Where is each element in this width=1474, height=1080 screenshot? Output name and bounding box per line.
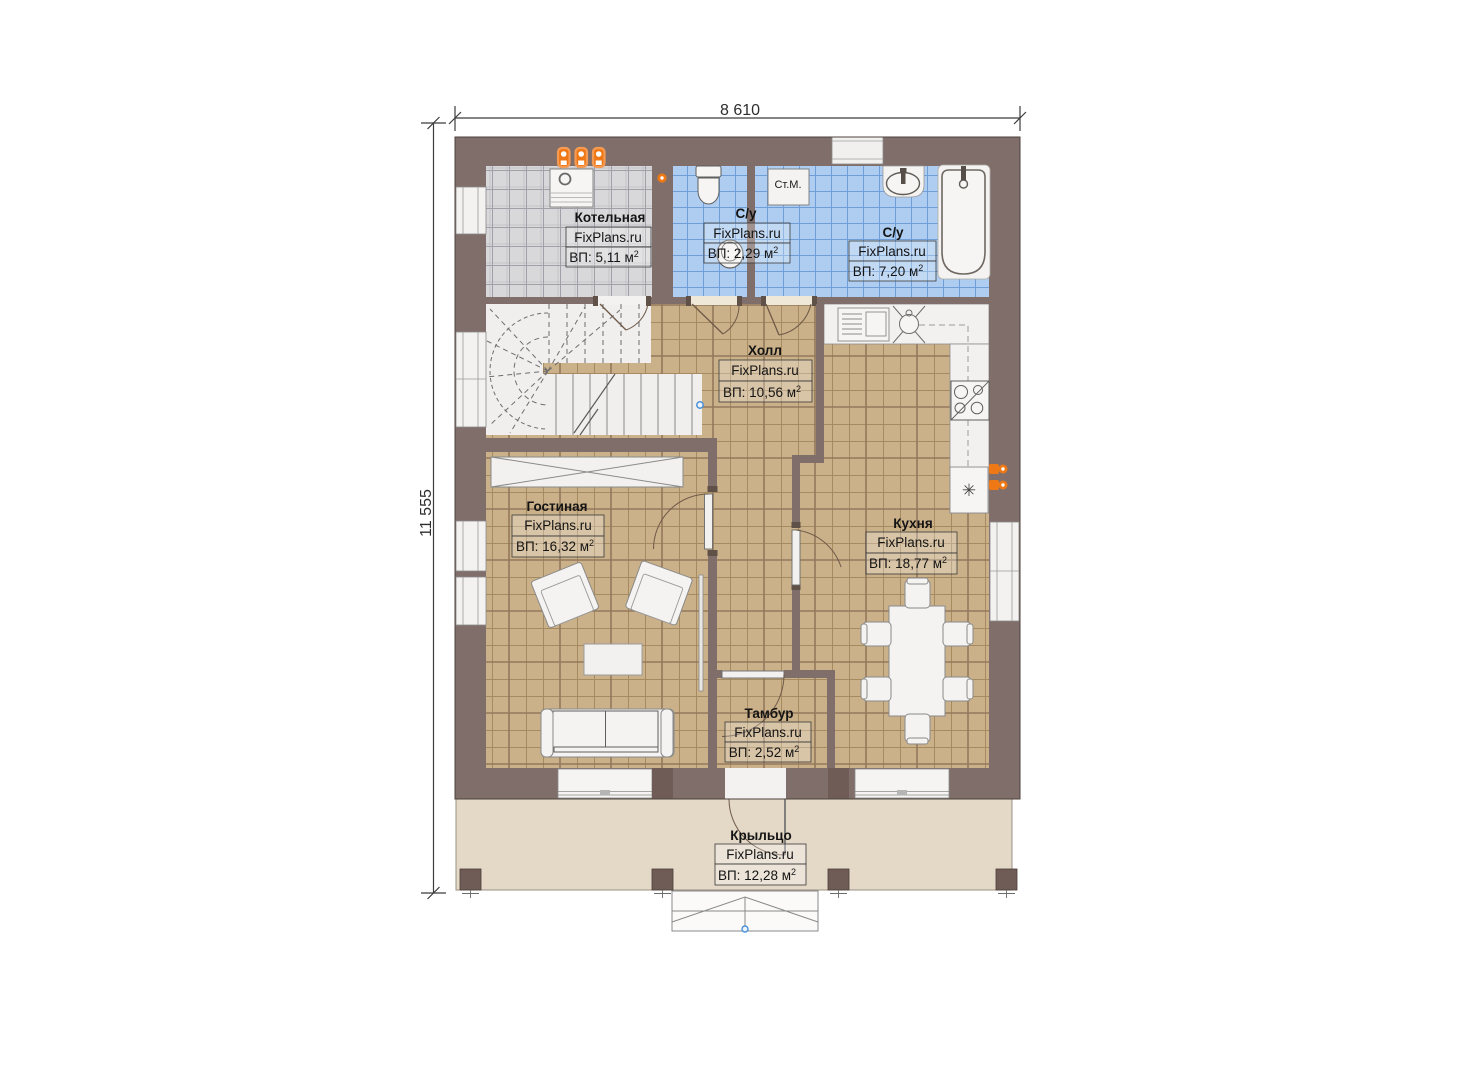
- svg-text:✳: ✳: [962, 481, 976, 500]
- svg-text:FixPlans.ru: FixPlans.ru: [734, 725, 802, 740]
- svg-text:Котельная: Котельная: [575, 210, 646, 225]
- svg-text:ВП: 10,56 м2: ВП: 10,56 м2: [723, 384, 801, 400]
- svg-text:Тамбур: Тамбур: [745, 706, 794, 721]
- svg-text:FixPlans.ru: FixPlans.ru: [524, 518, 592, 533]
- svg-text:ВП: 16,32 м2: ВП: 16,32 м2: [516, 538, 594, 554]
- svg-text:ВП: 5,11 м2: ВП: 5,11 м2: [569, 249, 639, 265]
- svg-text:FixPlans.ru: FixPlans.ru: [574, 230, 642, 245]
- svg-text:Холл: Холл: [748, 343, 782, 358]
- svg-text:FixPlans.ru: FixPlans.ru: [726, 847, 794, 862]
- svg-text:FixPlans.ru: FixPlans.ru: [731, 363, 799, 378]
- svg-text:Ст.М.: Ст.М.: [774, 179, 801, 191]
- svg-text:Гостиная: Гостиная: [526, 499, 587, 514]
- svg-text:FixPlans.ru: FixPlans.ru: [713, 226, 781, 241]
- svg-text:ВП: 2,52 м2: ВП: 2,52 м2: [729, 744, 800, 760]
- svg-text:ВП: 7,20 м2: ВП: 7,20 м2: [853, 263, 924, 279]
- svg-text:Кухня: Кухня: [893, 516, 932, 531]
- svg-text:ВП: 12,28 м2: ВП: 12,28 м2: [718, 867, 796, 883]
- svg-text:8 610: 8 610: [720, 102, 760, 119]
- svg-text:ВП: 18,77 м2: ВП: 18,77 м2: [869, 555, 947, 571]
- svg-text:FixPlans.ru: FixPlans.ru: [858, 244, 926, 259]
- svg-text:Крыльцо: Крыльцо: [730, 828, 791, 843]
- svg-text:С/у: С/у: [735, 206, 757, 221]
- svg-text:ВП: 2,29 м2: ВП: 2,29 м2: [708, 245, 779, 261]
- svg-text:С/у: С/у: [882, 225, 904, 240]
- svg-text:FixPlans.ru: FixPlans.ru: [877, 535, 945, 550]
- svg-text:11 555: 11 555: [418, 489, 435, 537]
